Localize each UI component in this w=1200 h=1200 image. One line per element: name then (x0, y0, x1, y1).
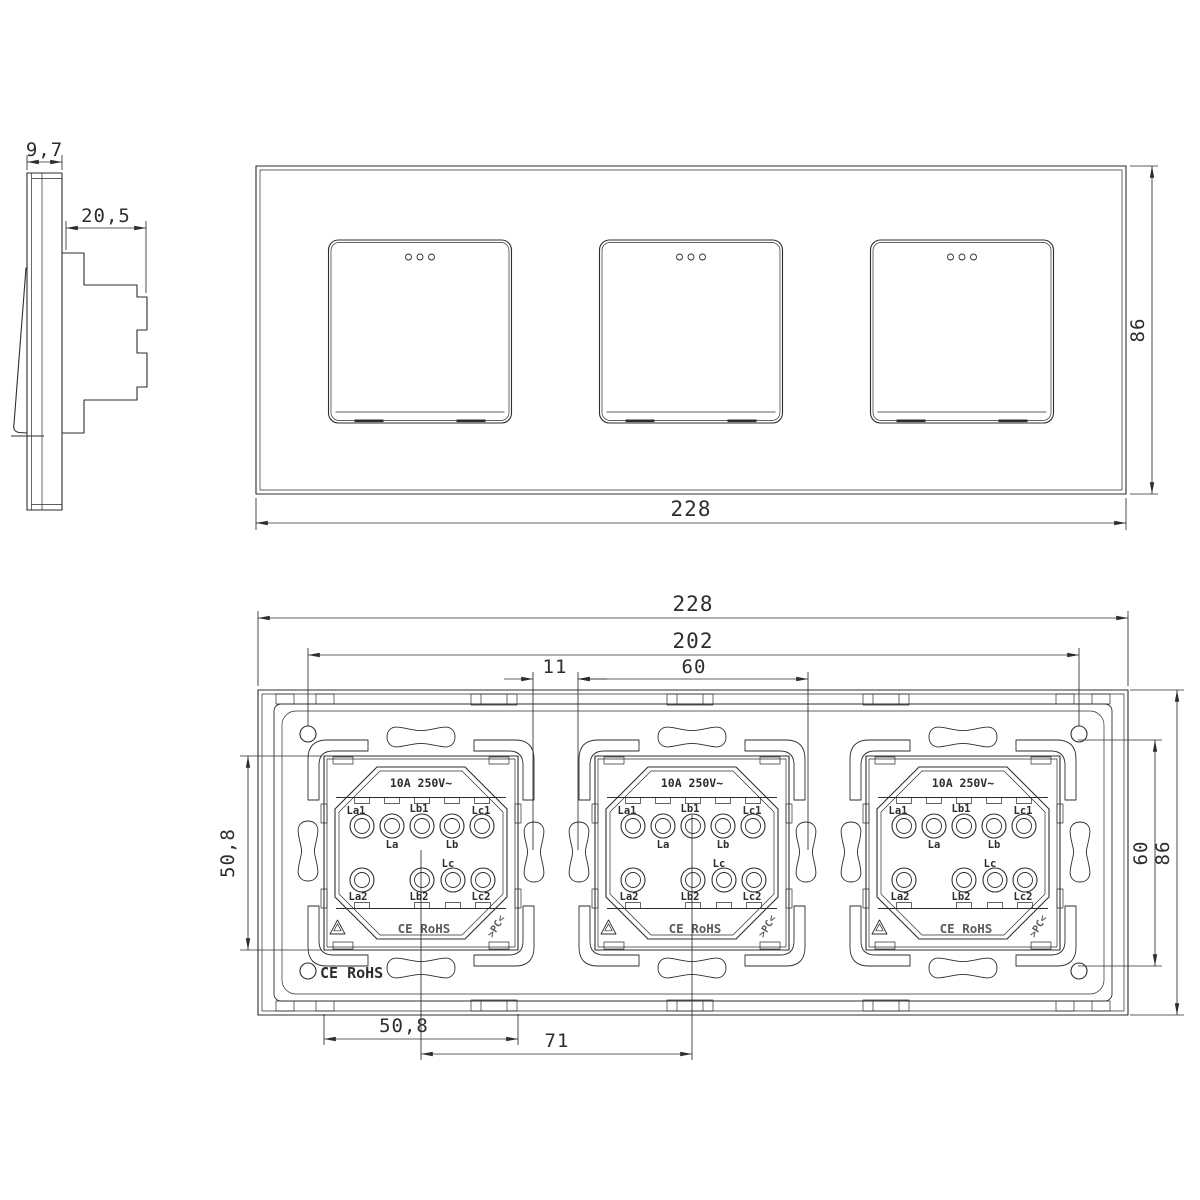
dim-rear-module-outer-width: 60 (682, 656, 707, 678)
dim-rear-module-spacing: 71 (545, 1030, 570, 1052)
screw-hole (300, 963, 316, 979)
mounting-slot (387, 727, 455, 747)
switch-module-3 (850, 740, 1076, 966)
dim-rear-module-outer-height: 60 (1130, 841, 1152, 866)
mounting-slot (569, 822, 589, 882)
mounting-slot (298, 821, 318, 881)
dim-front-overall-width: 228 (671, 497, 712, 521)
side-view: 9,7 20,5 (11, 139, 147, 510)
switch-dimension-drawing: 10A 250V~ La1 La Lb1 Lb Lc1 La2 Lb2 Lc L… (0, 0, 1200, 1200)
dim-rear-module-height: 50,8 (217, 828, 239, 878)
technical-drawing-page: 10A 250V~ La1 La Lb1 Lb Lc1 La2 Lb2 Lc L… (0, 0, 1200, 1200)
back-box-profile (62, 253, 147, 433)
dim-rear-module-gap: 11 (543, 656, 568, 678)
front-view: 228 86 (256, 166, 1158, 530)
mounting-slot (524, 822, 544, 882)
mounting-slot (658, 727, 726, 747)
dim-side-thickness: 9,7 (26, 139, 63, 161)
dim-rear-overall-height: 86 (1152, 841, 1174, 866)
rocker-3[interactable] (871, 240, 1054, 423)
screw-hole (300, 726, 316, 742)
mounting-slot (929, 958, 997, 978)
mounting-slot (1070, 822, 1090, 882)
mounting-slot (929, 727, 997, 747)
mounting-slot (841, 822, 861, 882)
mounting-slot (796, 822, 816, 882)
rocker-1[interactable] (329, 240, 512, 423)
plate-ce-marking: CE RoHS (320, 964, 383, 982)
glass-panel (256, 166, 1126, 494)
rocker-profile (14, 268, 27, 433)
rear-view: CE RoHS 228 202 60 11 50,8 60 86 (217, 592, 1184, 1060)
screw-hole (1071, 963, 1087, 979)
dim-rear-overall-width: 228 (673, 592, 714, 616)
dim-front-overall-height: 86 (1127, 318, 1149, 343)
rocker-2[interactable] (600, 240, 783, 423)
dim-rear-screw-span: 202 (673, 629, 714, 653)
dim-side-depth: 20,5 (81, 205, 131, 227)
mounting-plate (258, 690, 1128, 1015)
